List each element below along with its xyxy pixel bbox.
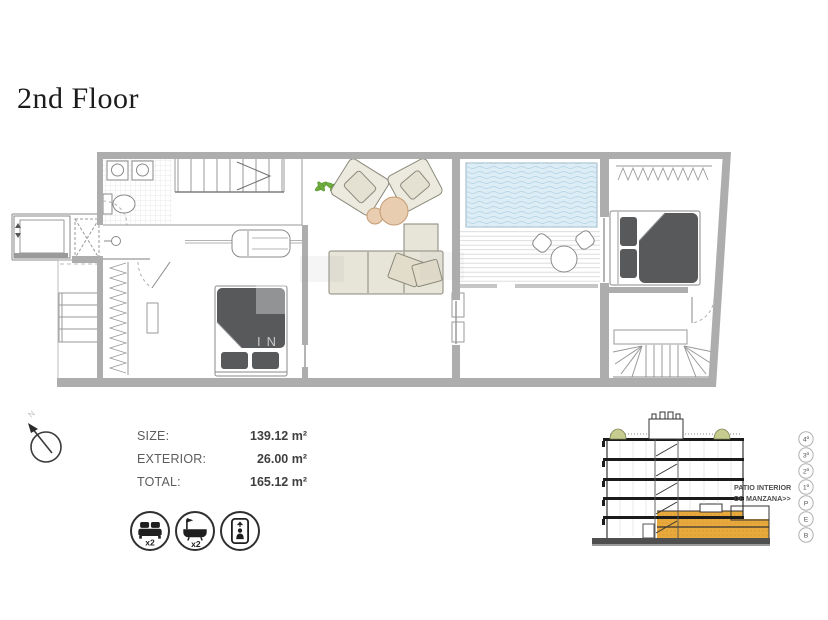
bathrooms-badge: x2 (175, 511, 215, 551)
floor-badge-p: P (804, 501, 809, 508)
north-label: N (27, 409, 37, 420)
shelf (147, 303, 158, 333)
roof-bush (714, 429, 730, 439)
toilet (103, 194, 112, 214)
pillow (221, 352, 248, 369)
bedroom-2 (610, 166, 712, 285)
coffee-table (380, 197, 408, 225)
floor-badge-b: B (804, 533, 809, 540)
stairs-upper (175, 159, 302, 225)
floor-badge-1: 1º (803, 485, 810, 492)
bedroom-1 (103, 259, 287, 376)
floor-badge-e: E (804, 517, 809, 524)
roof-bush (610, 429, 626, 439)
bath-count: x2 (191, 539, 201, 549)
bedrooms-badge: x2 (130, 511, 170, 551)
floorplan-page: 2nd Floor (0, 0, 828, 620)
area-info-table: SIZE: 139.12 m² EXTERIOR: 26.00 m² TOTAL… (137, 429, 307, 498)
bed-count: x2 (145, 537, 155, 547)
svg-text:PATIO INTERIOR: PATIO INTERIOR (734, 483, 792, 492)
floor-badge-2: 2º (803, 469, 810, 476)
chaise-lounge (232, 230, 290, 257)
page-title: 2nd Floor (17, 82, 139, 116)
pillow (620, 217, 637, 246)
info-row-total: TOTAL: 165.12 m² (137, 475, 307, 498)
ground-line (592, 538, 770, 544)
door-leaf (152, 262, 170, 288)
door-knob (112, 237, 121, 246)
bath-icon: x2 (177, 513, 213, 549)
total-value: 165.12 m² (250, 475, 307, 489)
size-label: SIZE: (137, 429, 169, 443)
terrace (452, 163, 600, 342)
elevator-icon (222, 513, 258, 549)
floor-badge-3: 3º (803, 453, 810, 460)
roof-tower (649, 412, 683, 439)
floor-level-badges: 4º 3º 2º 1º P E B (799, 432, 813, 542)
elevator-badge (220, 511, 260, 551)
svg-text:IN: IN (257, 334, 282, 349)
feature-icons: x2 x2 (130, 511, 260, 551)
info-row-exterior: EXTERIOR: 26.00 m² (137, 452, 307, 475)
planter (452, 322, 464, 342)
info-row-size: SIZE: 139.12 m² (137, 429, 307, 452)
stairs-lower (613, 297, 714, 377)
ground-door (643, 524, 654, 538)
wardrobe-rail (618, 168, 708, 180)
shower (75, 219, 99, 258)
size-value: 139.12 m² (250, 429, 307, 443)
bathroom (103, 154, 172, 225)
exterior-shelves (58, 260, 100, 378)
north-arrowhead (28, 423, 38, 433)
building-section-diagram: PATIO INTERIOR DE MANZANA>> 4º 3º 2º 1º … (586, 406, 828, 562)
svg-text:DE MANZANA>>: DE MANZANA>> (734, 494, 791, 503)
pool (466, 163, 597, 227)
floor-plan-drawing: IN (0, 140, 828, 405)
highlighted-floors (657, 511, 769, 539)
total-label: TOTAL: (137, 475, 181, 489)
north-arrow-compass: N (14, 404, 84, 474)
exterior-label: EXTERIOR: (137, 452, 206, 466)
hall (103, 225, 302, 257)
floor-badge-4: 4º (803, 437, 810, 444)
bed-2 (610, 211, 700, 285)
bed-icon: x2 (132, 513, 168, 549)
pillow (620, 249, 637, 278)
pillow (252, 352, 279, 369)
closet-hangers (110, 263, 126, 373)
exterior-value: 26.00 m² (257, 452, 307, 466)
